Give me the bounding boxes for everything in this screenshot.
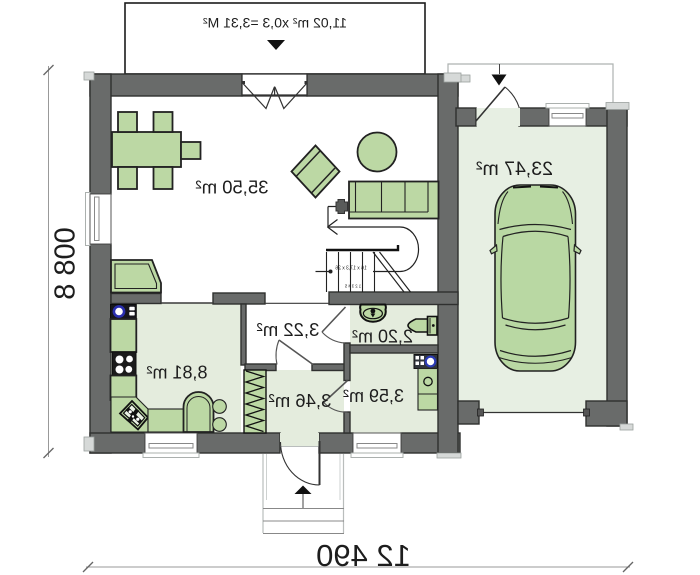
- svg-text:3,22 m²: 3,22 m²: [257, 319, 320, 340]
- svg-text:8 800: 8 800: [50, 227, 82, 300]
- svg-text:8,81 m²: 8,81 m²: [146, 363, 207, 383]
- svg-text:3,59 m²: 3,59 m²: [343, 386, 404, 406]
- svg-text:12 490: 12 490: [316, 538, 411, 573]
- svg-text:11,02 m² x0,3 =3,31 M²: 11,02 m² x0,3 =3,31 M²: [203, 15, 347, 31]
- svg-text:35,50 m²: 35,50 m²: [195, 177, 268, 198]
- svg-text:3,46 m²: 3,46 m²: [269, 390, 332, 411]
- svg-text:16 x 17,3 x 26: 16 x 17,3 x 26: [335, 266, 367, 272]
- svg-text:1 2 3 4 5: 1 2 3 4 5: [344, 284, 361, 289]
- svg-text:23,47 m²: 23,47 m²: [476, 158, 553, 180]
- svg-text:2,20 m²: 2,20 m²: [352, 327, 413, 347]
